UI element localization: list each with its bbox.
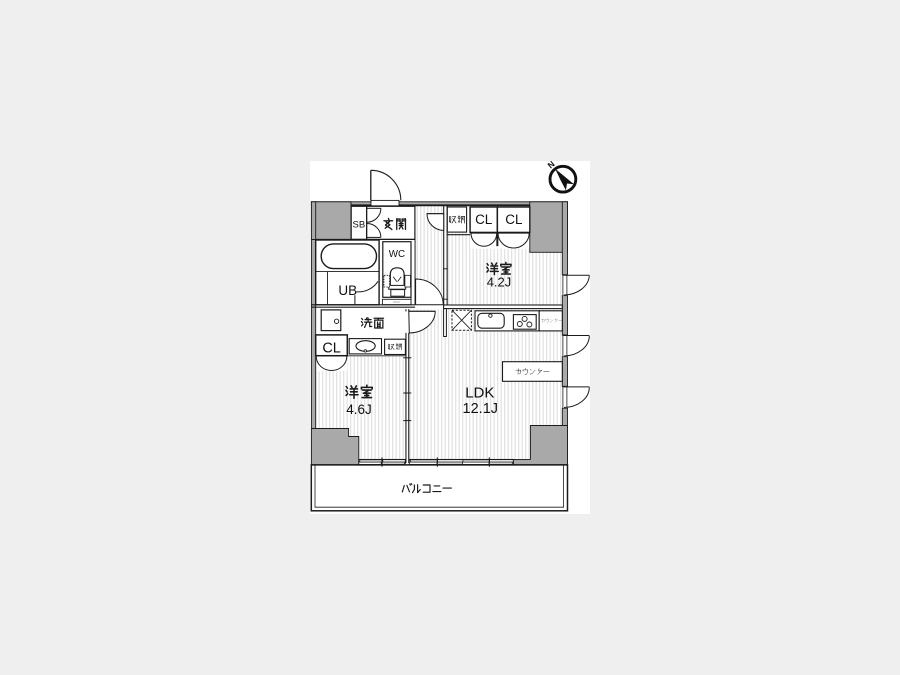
svg-text:UB: UB	[338, 283, 357, 298]
svg-text:4.2J: 4.2J	[487, 275, 512, 290]
svg-text:4.6J: 4.6J	[346, 402, 372, 417]
svg-text:CL: CL	[475, 212, 493, 227]
svg-text:SB: SB	[353, 220, 366, 231]
svg-text:LDK: LDK	[465, 384, 494, 401]
svg-text:CL: CL	[505, 212, 523, 227]
svg-text:CL: CL	[322, 340, 341, 356]
svg-text:12.1J: 12.1J	[463, 401, 498, 417]
svg-text:WC: WC	[389, 249, 405, 260]
